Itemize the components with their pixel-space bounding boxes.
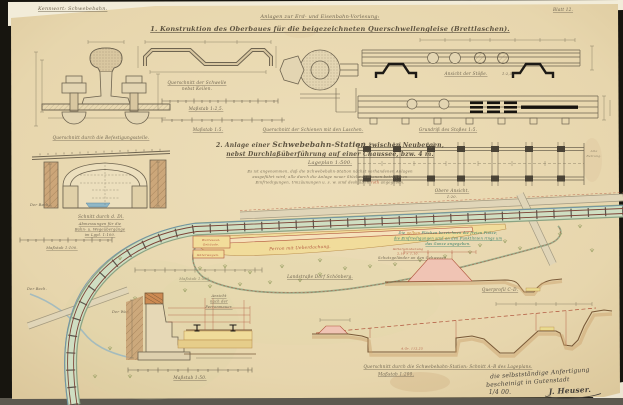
section2-lageplan: Lageplan 1:500. [307, 160, 352, 166]
note-teal-2: die Einfriedigungen sind an den Punktlin… [394, 237, 503, 241]
caption-obere-ansicht: Obere Ansicht. [435, 188, 469, 193]
signature-date: 1/4 00. [489, 389, 512, 396]
caption-msb200: Maßstab 1:200. [377, 372, 414, 377]
header-center: Anlagen zur Erd- und Eisenbahn-Vorlesung… [259, 14, 379, 20]
caption-msb25: Maßstab 1:2,5. [188, 106, 224, 111]
label-agr: A.Gr. 112,25 [400, 347, 423, 351]
caption-stoss-scale: 1:2,5. [502, 72, 514, 76]
caption-laschen: Querschnitt der Schienen mit den Laschen… [263, 127, 364, 132]
caption-msb5: Maßstab 1:5. [192, 127, 223, 132]
label-bettung: Bettung. [585, 154, 601, 158]
note-paragraph-1: Es ist angenommen, daß die Schwebebahn-S… [246, 170, 413, 174]
note-teal-1: Die gelben Flächen bezeichnen die freien… [398, 231, 499, 235]
caption-querprofil: Querprofil C–D. [482, 287, 518, 292]
caption-wall-3: Perronmauer. [204, 305, 232, 309]
label-wartesaal-1: Wartesaal- [202, 238, 221, 242]
label-abmessungen-3: im Lgpl. 1:100. [85, 233, 116, 237]
caption-schwelle-1: Querschnitt der Schwelle [168, 80, 227, 85]
label-alte: Alte [589, 149, 597, 153]
caption-wall-1: Ansicht [210, 294, 226, 298]
caption-msb100: Maßstab 1:100. [45, 246, 77, 250]
caption-msb50: Maßstab 1:50. [172, 375, 206, 380]
note-paragraph-2: ausgeführt wird; alle durch die Anlage n… [252, 175, 408, 179]
caption-wall-2: nach der [210, 300, 228, 304]
sheet-number: Blatt 12. [552, 7, 573, 12]
stain [582, 138, 602, 182]
label-gueterwagen: Güterwagen. [197, 253, 220, 257]
caption-obere-scale: 1:20. [447, 195, 457, 199]
section1-title: 1. Konstruktion des Oberbaues für die be… [150, 25, 510, 33]
caption-section-ab: Querschnitt durch die Schwebebahn-Statio… [363, 364, 532, 369]
engineering-drawing: Kennwort: Schwebebahn. Anlagen zur Erd- … [0, 0, 623, 405]
caption-culvert: Schnitt durch d. Dl. [78, 214, 124, 219]
label-wartesaal-2: Gebäude. [203, 243, 220, 247]
header-left: Kennwort: Schwebebahn. [37, 6, 108, 12]
drawing-sheet-photo: Kennwort: Schwebebahn. Anlagen zur Erd- … [0, 0, 623, 405]
label-abmessungen-1: Abmessungen für die [78, 222, 122, 226]
label-strasse: Landstraße Dorf Schönberg. [286, 274, 353, 279]
section2-title: 2. Anlage einer Schwebebahn-Station zwis… [215, 140, 444, 149]
note-red-1: Gitterumzäunung [393, 247, 424, 251]
section2-title-line2: nebst Durchlaßüberführung auf einer Chau… [226, 151, 434, 158]
label-bach-1: Der Bach. [29, 203, 50, 207]
label-bach-2: Der Bach. [26, 287, 47, 291]
label-abmessungen-2: Bahn- u. Wegeübergänge [74, 228, 125, 232]
note-paragraph-3: Einfriedigungen, Umzäunungen u. s. w. si… [255, 181, 405, 185]
note-teal-3: das Ganze angegeben. [425, 242, 470, 246]
caption-grundriss-stoss: Grundriß des Stoßes 1:5. [419, 127, 477, 132]
caption-befestigung: Querschnitt durch die Befestigungsstelle… [53, 135, 150, 140]
caption-schwelle-2: nebst Keilen. [182, 86, 212, 91]
table-edge [0, 398, 623, 405]
caption-ansicht-stoss: Ansicht der Stöße. [443, 71, 487, 76]
